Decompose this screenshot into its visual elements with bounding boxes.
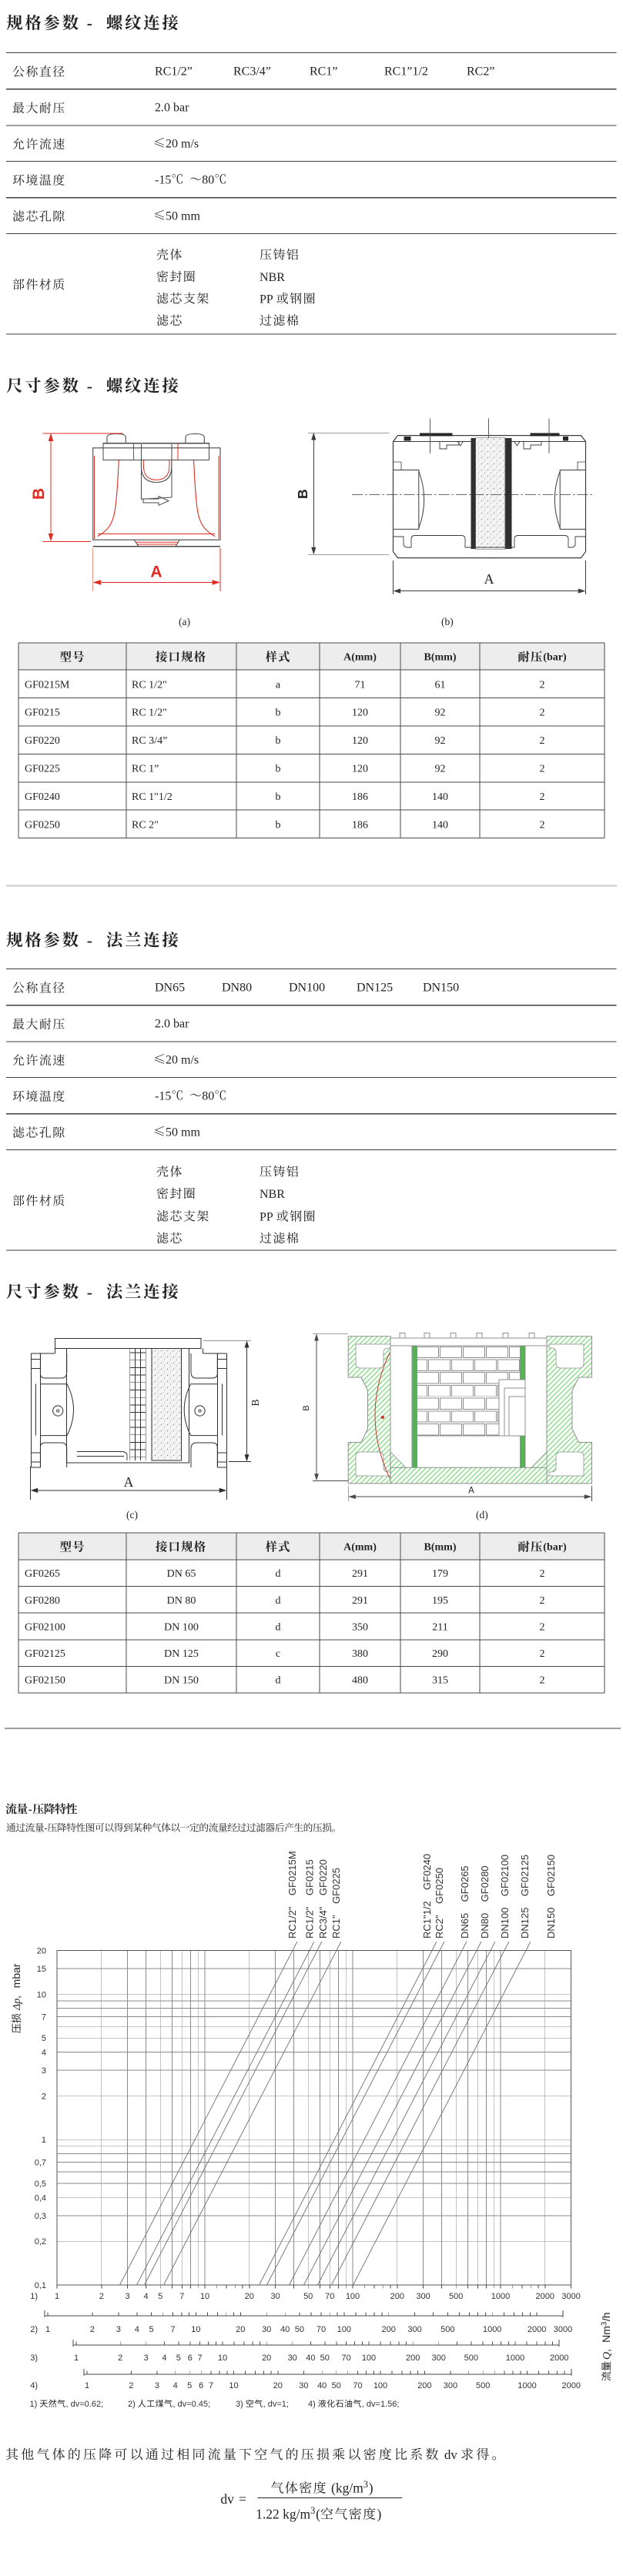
svg-text:2000: 2000 [536,2292,554,2301]
svg-text:2: 2 [540,1648,545,1660]
svg-text:RC1”1/2: RC1”1/2 [384,65,428,78]
svg-text:d: d [276,1595,281,1607]
svg-text:DN125: DN125 [357,981,393,994]
svg-text:4: 4 [162,2354,166,2363]
svg-text:c: c [276,1648,280,1660]
svg-text:1: 1 [85,2381,89,2390]
svg-text:61: 61 [435,679,446,691]
svg-text:20 m/s: 20 m/s [166,137,199,150]
svg-text:6: 6 [188,2354,193,2363]
svg-text:GF0220: GF0220 [25,735,60,747]
svg-text:2000: 2000 [550,2354,568,2363]
svg-text:50: 50 [320,2354,330,2363]
svg-text:d: d [276,1621,281,1633]
svg-text:2: 2 [540,1568,545,1580]
svg-text:RC 2": RC 2" [132,819,159,831]
svg-text:A: A [468,1487,474,1496]
svg-text:10: 10 [191,2325,200,2334]
svg-text:DN 100: DN 100 [164,1621,199,1633]
svg-text:0,3: 0,3 [35,2212,46,2221]
svg-text:2: 2 [129,2381,133,2390]
svg-text:0,5: 0,5 [35,2180,46,2189]
svg-text:GF0215M: GF0215M [25,679,70,691]
svg-text:A: A [150,564,162,581]
svg-text:186: 186 [352,819,368,831]
svg-text:3000: 3000 [554,2325,572,2334]
svg-text:20: 20 [37,1947,46,1956]
svg-text:2: 2 [540,1621,545,1633]
svg-text:70: 70 [317,2325,326,2334]
svg-text:50: 50 [332,2381,341,2390]
svg-text:20: 20 [273,2381,283,2390]
svg-text:-: - [28,1804,32,1816]
svg-text:NBR: NBR [260,1188,285,1201]
svg-text:GF0280: GF0280 [25,1595,60,1607]
svg-text:RC 1"1/2: RC 1"1/2 [132,791,172,803]
svg-text:(b): (b) [441,616,454,627]
svg-text:DN65 GF0265: DN65 GF0265 [459,1865,471,1939]
svg-text:A(mm): A(mm) [343,652,377,664]
svg-text:0,4: 0,4 [35,2193,46,2203]
svg-text:dv: dv [220,2491,234,2507]
svg-text:20: 20 [245,2292,254,2301]
svg-text:5: 5 [176,2354,181,2363]
svg-text:(d): (d) [476,1509,488,1521]
svg-text:(kg/m: (kg/m [331,2481,363,2496]
svg-text:DN 150: DN 150 [164,1675,199,1687]
svg-text:mbar: mbar [10,1963,22,1988]
svg-text:2.0 bar: 2.0 bar [155,102,189,115]
svg-text:40: 40 [317,2381,327,2390]
svg-text:4: 4 [144,2292,149,2301]
svg-text:5: 5 [149,2325,153,2334]
svg-text:30: 30 [270,2292,280,2301]
svg-text:4: 4 [173,2381,178,2390]
svg-text:1000: 1000 [483,2325,501,2334]
svg-text:RC 1”: RC 1” [132,764,159,775]
svg-text:100: 100 [337,2325,351,2334]
svg-text:15: 15 [37,1965,46,1974]
svg-text:GF0265: GF0265 [25,1568,60,1580]
svg-text:70: 70 [325,2292,334,2301]
svg-text:300: 300 [416,2292,430,2301]
svg-text:3: 3 [155,2381,159,2390]
svg-text:4: 4 [42,2049,46,2058]
svg-text:3: 3 [310,2505,315,2516]
svg-text:-: - [87,14,92,32]
svg-text:10: 10 [37,1990,46,1999]
svg-text:1: 1 [74,2354,79,2363]
svg-text:140: 140 [432,791,448,803]
svg-text:500: 500 [449,2292,463,2301]
svg-text:7: 7 [179,2292,184,2301]
svg-text:6: 6 [199,2381,203,2390]
svg-text:10: 10 [229,2381,238,2390]
svg-text:GF02100: GF02100 [25,1621,65,1633]
svg-text:300: 300 [407,2325,421,2334]
svg-text:5: 5 [42,2034,46,2043]
svg-text:50: 50 [295,2325,304,2334]
svg-text:500: 500 [464,2354,478,2363]
svg-text:RC1/2”: RC1/2” [155,65,193,78]
svg-text:1000: 1000 [491,2292,510,2301]
svg-text:20: 20 [236,2325,245,2334]
svg-text:4: 4 [135,2325,139,2334]
svg-text:DN150 GF02150: DN150 GF02150 [545,1855,557,1939]
svg-text:500: 500 [476,2381,490,2390]
svg-text:186: 186 [352,791,368,803]
svg-text:RC 3/4”: RC 3/4” [132,735,167,747]
svg-text:A: A [484,571,494,587]
svg-text:3: 3 [144,2354,149,2363]
svg-text:): ) [369,2481,373,2496]
svg-text:120: 120 [352,708,368,719]
svg-text:20 m/s: 20 m/s [166,1054,199,1067]
svg-text:71: 71 [355,679,366,691]
svg-text:140: 140 [432,819,448,831]
svg-text:d: d [276,1568,281,1580]
svg-text:100: 100 [346,2292,360,2301]
svg-text:3: 3 [42,2066,46,2076]
svg-text:40: 40 [306,2354,315,2363]
svg-text:Q: Q [601,2352,613,2360]
svg-text:B: B [295,489,310,499]
svg-text:-: - [87,932,92,950]
svg-text:RC3/4" GF0220: RC3/4" GF0220 [317,1859,329,1939]
svg-text:-: - [87,377,92,396]
svg-text:2: 2 [540,708,545,719]
svg-text:0,1: 0,1 [35,2281,46,2290]
svg-text:-: - [44,1823,47,1834]
svg-text:300: 300 [432,2354,446,2363]
svg-text:1): 1) [30,2400,40,2409]
svg-text:1: 1 [55,2292,59,2301]
svg-text:50: 50 [303,2292,313,2301]
svg-text:80: 80 [202,173,214,186]
svg-text:200: 200 [390,2292,404,2301]
svg-text:RC 1/2": RC 1/2" [132,708,167,719]
svg-text:350: 350 [352,1621,368,1633]
svg-text:5: 5 [158,2292,162,2301]
svg-text:(: ( [316,2507,320,2522]
svg-text:b: b [276,735,281,747]
svg-text:92: 92 [435,708,446,719]
svg-text:=: = [239,2491,246,2507]
svg-text:RC2”: RC2” [467,65,494,78]
svg-text:30: 30 [262,2325,271,2334]
svg-text:40: 40 [280,2325,290,2334]
svg-text:GF02125: GF02125 [25,1648,65,1660]
svg-text:380: 380 [352,1648,368,1660]
svg-text:2: 2 [540,679,545,691]
svg-text:b: b [276,791,281,803]
svg-text:120: 120 [352,735,368,747]
svg-text:10: 10 [200,2292,209,2301]
svg-text:RC 1/2": RC 1/2" [132,679,167,691]
svg-text:2: 2 [99,2292,104,2301]
svg-text:200: 200 [417,2381,431,2390]
svg-text:2: 2 [42,2092,46,2101]
svg-text:200: 200 [406,2354,420,2363]
svg-text:3: 3 [116,2325,121,2334]
svg-text:20: 20 [262,2354,271,2363]
svg-text:RC3/4”: RC3/4” [233,65,271,78]
svg-text:DN 80: DN 80 [167,1595,196,1607]
svg-text:2000: 2000 [528,2325,546,2334]
svg-text:a: a [276,679,281,691]
svg-text:291: 291 [352,1568,368,1580]
svg-text:480: 480 [352,1675,368,1687]
svg-text:120: 120 [352,764,368,775]
svg-text:300: 300 [444,2381,457,2390]
svg-text:b: b [276,819,281,831]
svg-text:2: 2 [118,2354,122,2363]
svg-text:500: 500 [440,2325,454,2334]
svg-text:-15: -15 [155,1089,171,1102]
svg-text:70: 70 [341,2354,350,2363]
svg-text:200: 200 [382,2325,396,2334]
svg-text:2: 2 [540,764,545,775]
svg-text:100: 100 [373,2381,387,2390]
svg-text:179: 179 [432,1568,448,1580]
svg-text:RC2" GF0250: RC2" GF0250 [434,1868,445,1939]
svg-text:10: 10 [218,2354,227,2363]
svg-text:PP: PP [260,1210,276,1223]
svg-text:DN100 GF02100: DN100 GF02100 [499,1855,511,1939]
svg-text:50 mm: 50 mm [166,209,200,222]
svg-text:RC1" GF0225: RC1" GF0225 [330,1868,342,1939]
svg-text:3: 3 [363,2479,368,2490]
svg-text:,: , [10,1996,22,1999]
svg-text:DN65: DN65 [155,981,185,994]
svg-text:Δp: Δp [12,1999,23,2011]
svg-text:, dv=1;: , dv=1; [263,2400,289,2409]
svg-text:B: B [250,1399,261,1406]
svg-text:2: 2 [540,819,545,831]
svg-text:92: 92 [435,764,446,775]
svg-text:0,2: 0,2 [35,2237,46,2246]
svg-text:2.0 bar: 2.0 bar [155,1018,189,1031]
svg-text:7: 7 [198,2354,203,2363]
svg-text:dv: dv [441,2447,461,2462]
svg-text:DN125 GF02125: DN125 GF02125 [519,1855,531,1939]
svg-text:1000: 1000 [517,2381,536,2390]
svg-text:2): 2) [30,2325,38,2334]
svg-text:2): 2) [128,2400,138,2409]
svg-text:50 mm: 50 mm [166,1126,200,1139]
svg-text:b: b [276,708,281,719]
svg-text:PP: PP [260,293,276,306]
svg-text:4): 4) [30,2381,38,2390]
svg-text:NBR: NBR [260,271,285,284]
svg-text:B: B [30,488,48,500]
svg-text:2: 2 [90,2325,95,2334]
svg-text:RC1"1/2 GF0240: RC1"1/2 GF0240 [421,1854,433,1939]
svg-text:92: 92 [435,735,446,747]
svg-text:291: 291 [352,1595,368,1607]
svg-text:RC1/2" GF0215M: RC1/2" GF0215M [286,1851,298,1939]
svg-text:1000: 1000 [506,2354,524,2363]
svg-text:3000: 3000 [561,2292,580,2301]
svg-text:7: 7 [209,2381,213,2390]
svg-text:211: 211 [432,1621,447,1633]
svg-text:2: 2 [540,791,545,803]
svg-text:80: 80 [202,1089,214,1102]
svg-text:B(mm): B(mm) [424,652,457,664]
svg-text:30: 30 [299,2381,308,2390]
svg-text:, dv=1.56;: , dv=1.56; [362,2400,400,2409]
svg-text:B(mm): B(mm) [424,1542,457,1554]
svg-text:0,7: 0,7 [35,2158,46,2167]
svg-text:-: - [87,1283,92,1301]
svg-text:5: 5 [187,2381,192,2390]
svg-text:1: 1 [45,2325,50,2334]
svg-text:7: 7 [171,2325,176,2334]
svg-text:DN100: DN100 [289,981,325,994]
svg-text:): ) [377,2507,382,2522]
svg-text:2000: 2000 [562,2381,581,2390]
svg-text:2: 2 [540,735,545,747]
svg-text:RC1/2" GF0215: RC1/2" GF0215 [304,1859,316,1939]
svg-text:1): 1) [30,2292,38,2301]
svg-text:30: 30 [288,2354,297,2363]
svg-text:3: 3 [126,2292,130,2301]
svg-text:GF02150: GF02150 [25,1675,65,1687]
svg-text:100: 100 [362,2354,376,2363]
svg-text:(a): (a) [179,616,190,627]
svg-text:2: 2 [540,1595,545,1607]
svg-text:DN 65: DN 65 [167,1568,196,1580]
svg-text:315: 315 [432,1675,448,1687]
svg-text:/h: /h [600,2312,612,2321]
svg-text:GF0215: GF0215 [25,708,60,719]
svg-text:GF0250: GF0250 [25,819,60,831]
svg-text:,: , [600,2349,612,2352]
svg-text:DN80 GF0280: DN80 GF0280 [479,1865,491,1939]
svg-text:RC1”: RC1” [310,65,337,78]
svg-text:195: 195 [432,1595,448,1607]
svg-text:DN150: DN150 [423,981,459,994]
svg-text:70: 70 [353,2381,362,2390]
svg-text:1: 1 [42,2136,46,2145]
svg-text:DN 125: DN 125 [164,1648,199,1660]
svg-text:d: d [276,1675,281,1687]
svg-text:, dv=0.62;: , dv=0.62; [66,2400,104,2409]
svg-text:A(mm): A(mm) [343,1542,377,1554]
svg-text:, dv=0.45;: , dv=0.45; [172,2400,210,2409]
svg-text:B: B [302,1405,311,1410]
svg-text:Nm: Nm [600,2326,612,2343]
svg-text:GF0225: GF0225 [25,764,60,775]
svg-text:GF0240: GF0240 [25,791,60,803]
svg-text:3): 3) [236,2400,246,2409]
svg-text:(c): (c) [126,1509,138,1521]
svg-text:4): 4) [308,2400,318,2409]
svg-text:b: b [276,764,281,775]
svg-text:(bar): (bar) [543,1542,567,1554]
svg-text:1.22 kg/m: 1.22 kg/m [256,2507,310,2522]
svg-text:A: A [124,1474,134,1490]
svg-text:2: 2 [540,1675,545,1687]
svg-text:(bar): (bar) [543,652,567,664]
svg-text:290: 290 [432,1648,448,1660]
svg-text:7: 7 [42,2013,46,2022]
svg-text:DN80: DN80 [222,981,252,994]
svg-text:3): 3) [30,2354,38,2363]
svg-text:-15: -15 [155,173,171,186]
